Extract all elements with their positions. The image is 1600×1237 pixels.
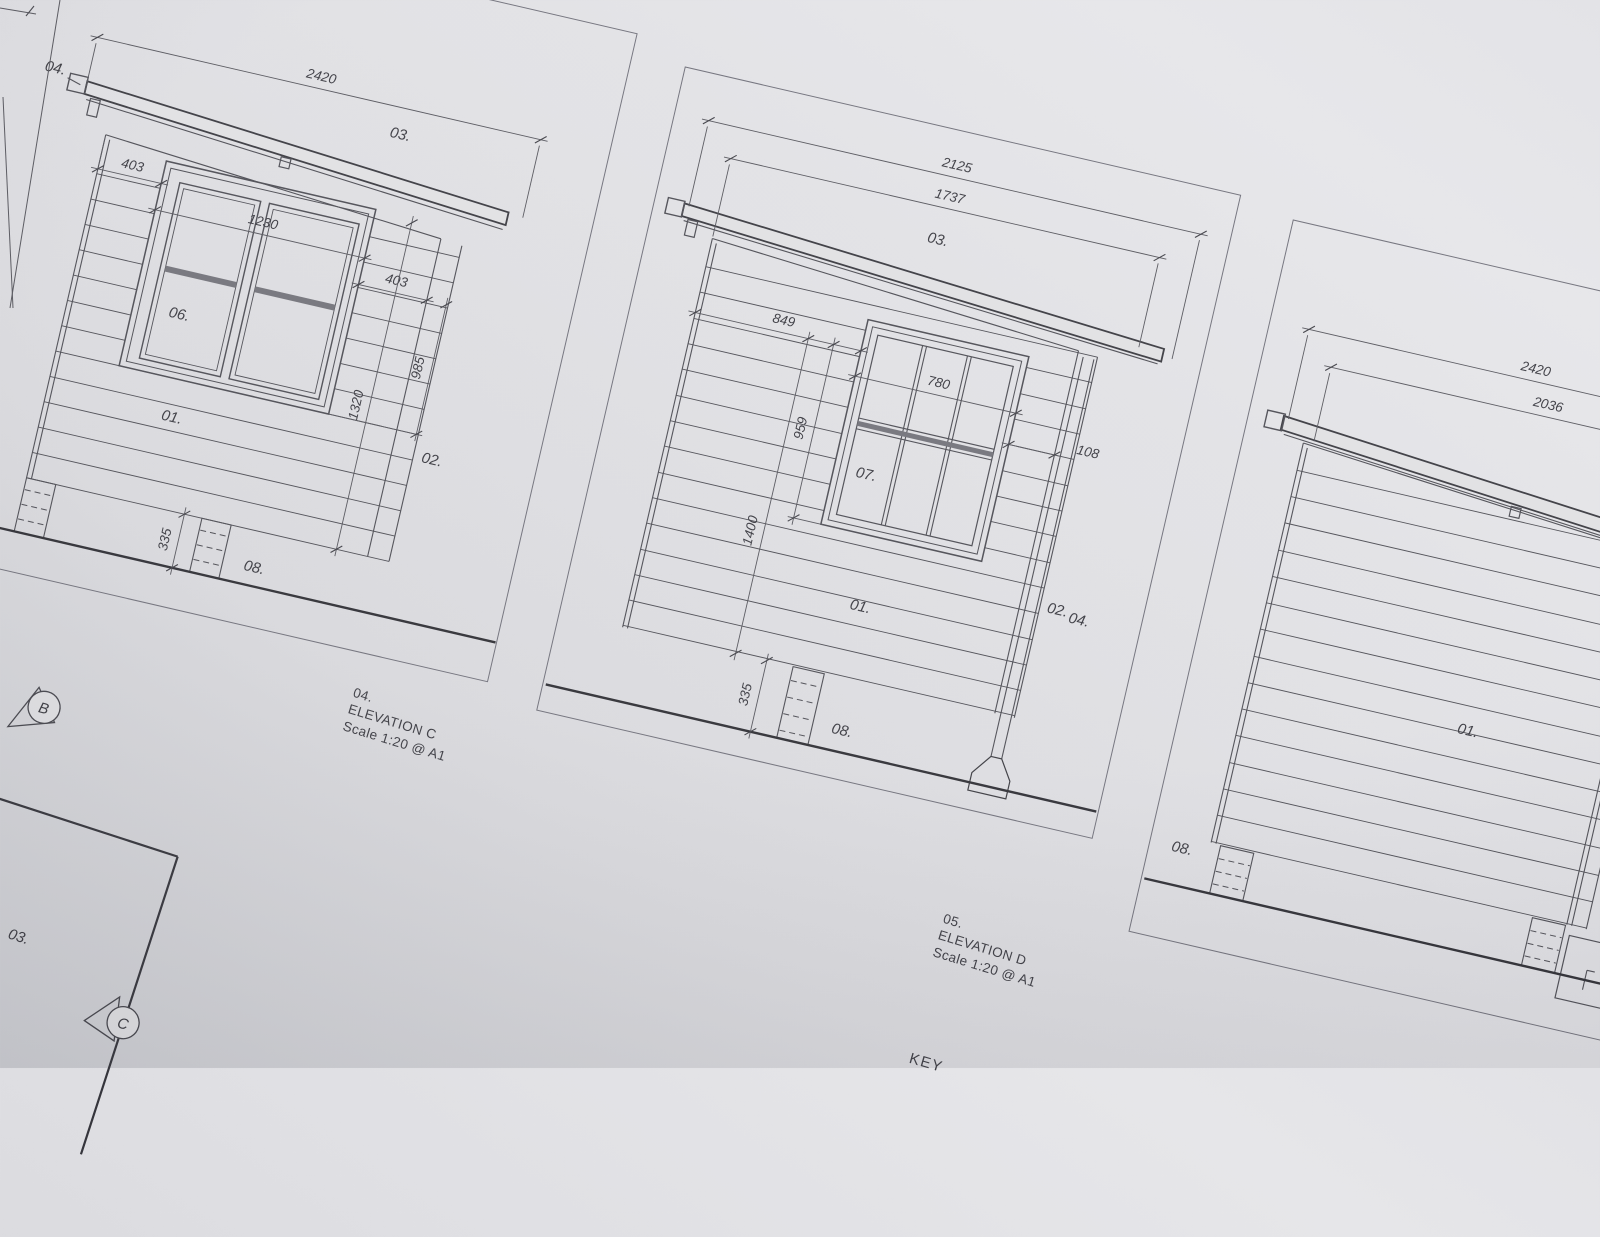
component-tag: 08. bbox=[1170, 838, 1194, 859]
component-tag: 03. bbox=[926, 229, 950, 250]
foundation-pier bbox=[777, 667, 825, 745]
roof-fascia bbox=[77, 81, 516, 225]
dimension-tick-icon bbox=[1049, 449, 1061, 460]
component-tag: 04. bbox=[1067, 610, 1091, 631]
ground-line bbox=[1144, 878, 1600, 1013]
component-tag: 01. bbox=[1456, 720, 1480, 741]
component-tag: 07. bbox=[854, 464, 878, 485]
dimension-tick-icon bbox=[828, 339, 840, 350]
dimension-tick-icon bbox=[725, 153, 737, 164]
fascia-end-cap bbox=[665, 198, 685, 217]
key-heading: KEY bbox=[907, 1050, 945, 1076]
dimension-tick-icon bbox=[406, 217, 418, 228]
component-tag: 01. bbox=[848, 596, 872, 617]
dimension-tick-icon bbox=[410, 429, 422, 440]
pier-hatch bbox=[193, 559, 220, 565]
dim-label: 1230 bbox=[247, 211, 280, 232]
component-tag: 06. bbox=[167, 304, 191, 325]
dim-label: 335 bbox=[735, 681, 755, 707]
dimension-tick-icon bbox=[179, 509, 191, 520]
pier-hatch bbox=[779, 730, 808, 737]
pier-hatch bbox=[18, 519, 45, 525]
dim-label: 1320 bbox=[345, 388, 366, 421]
component-tag: 01. bbox=[160, 407, 184, 428]
dimension-tick-icon bbox=[331, 544, 343, 555]
dimension-tick-icon bbox=[855, 345, 867, 356]
dim-label: 780 bbox=[926, 373, 952, 393]
dimension-tick-icon bbox=[26, 6, 34, 16]
plan-fragment: 03. bbox=[0, 745, 293, 1192]
dimension-tick-icon bbox=[1325, 362, 1337, 373]
adjacent-drawing-edge bbox=[0, 0, 140, 350]
foundation-pier bbox=[1210, 846, 1254, 901]
component-tag: 08. bbox=[830, 720, 854, 741]
dim-label: 2420 bbox=[304, 65, 338, 87]
glazing-bar bbox=[254, 286, 335, 310]
plan-tag: 03. bbox=[6, 926, 31, 949]
pier-hatch bbox=[25, 490, 52, 496]
component-tag: 02. bbox=[1046, 600, 1070, 621]
dimension-tick-icon bbox=[703, 115, 715, 126]
dim-label: 959 bbox=[791, 415, 811, 441]
pier-hatch bbox=[1525, 956, 1556, 963]
pier-hatch bbox=[21, 504, 48, 510]
dim-label: 108 bbox=[1075, 442, 1101, 462]
pier-hatch bbox=[1530, 931, 1561, 938]
dimension-tick-icon bbox=[761, 655, 773, 666]
roof-fascia bbox=[674, 203, 1172, 361]
dimension-tick-icon bbox=[849, 371, 861, 382]
pier-hatch bbox=[1216, 871, 1247, 878]
pier-hatch bbox=[787, 697, 816, 704]
component-tag: 08. bbox=[242, 557, 266, 578]
dimension-tick-icon bbox=[1303, 324, 1315, 335]
drawing-cell-border bbox=[537, 67, 1241, 838]
pier-hatch bbox=[783, 714, 812, 721]
dim-label: 2125 bbox=[940, 154, 974, 176]
dimension-tick-icon bbox=[788, 512, 800, 523]
glazing-bar bbox=[857, 421, 994, 457]
plan-border-top bbox=[0, 785, 178, 857]
component-tag: 02. bbox=[420, 449, 444, 470]
ground-line bbox=[546, 684, 1097, 811]
dimension-tick-icon bbox=[1003, 439, 1015, 450]
pier-hatch bbox=[197, 545, 224, 551]
dim-label: 335 bbox=[155, 526, 175, 552]
cladding-lines bbox=[623, 267, 1097, 716]
dim-label: 2420 bbox=[1519, 358, 1553, 380]
dimension-tick-icon bbox=[730, 648, 742, 659]
roof-fascia bbox=[1273, 416, 1600, 558]
dimension-tick-icon bbox=[1154, 252, 1166, 263]
fascia-bracket bbox=[684, 220, 697, 238]
pier-hatch bbox=[791, 680, 820, 687]
dimension-tick-icon bbox=[802, 333, 814, 344]
pier-hatch bbox=[1219, 859, 1250, 866]
dimension-tick-icon bbox=[1195, 229, 1207, 240]
panel-linework: 21251737849780108959140033503.07.01.02.0… bbox=[537, 67, 1241, 838]
window-inner-frame bbox=[126, 168, 368, 407]
dimension-tick-icon bbox=[149, 204, 161, 215]
dimension-tick-icon bbox=[535, 134, 547, 145]
foundation-pier bbox=[1521, 918, 1565, 973]
glazing-bar bbox=[164, 266, 236, 288]
pier-hatch bbox=[1213, 884, 1244, 891]
dimension-tick-icon bbox=[1010, 408, 1022, 419]
dim-label: 1737 bbox=[934, 186, 967, 207]
base-detail-box bbox=[1555, 935, 1600, 1011]
pier-hatch bbox=[200, 530, 227, 536]
pier-hatch bbox=[1528, 943, 1559, 950]
dim-label: 2036 bbox=[1531, 394, 1565, 416]
component-tag: 03. bbox=[388, 124, 412, 145]
cladding-lines bbox=[1211, 470, 1600, 928]
blueprint-photo: { "sheet": { "left_elevation": { "dims":… bbox=[0, 0, 1600, 1068]
dim-label: 985 bbox=[408, 355, 428, 381]
dimension-tick-icon bbox=[440, 299, 452, 310]
window-outer-frame bbox=[119, 161, 376, 414]
